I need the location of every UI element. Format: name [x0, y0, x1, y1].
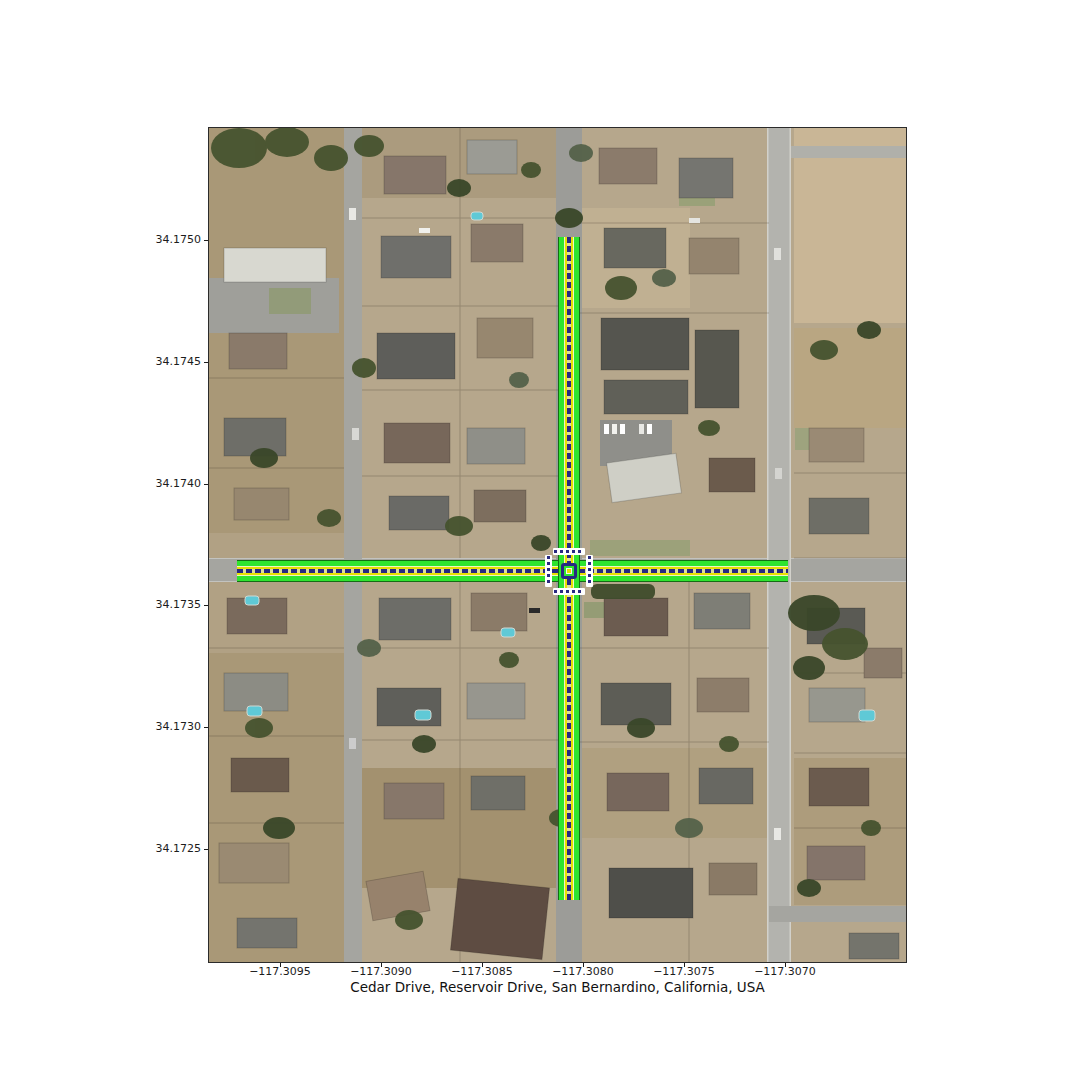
y-tick-mark: [204, 484, 208, 485]
y-tick-label: 34.1745: [96, 356, 201, 368]
crosswalk-north: [553, 548, 585, 555]
x-tick-label: −117.3095: [235, 966, 325, 978]
y-tick-label: 34.1735: [96, 599, 201, 611]
y-tick-mark: [204, 240, 208, 241]
long-white-building: [224, 248, 326, 282]
map-plot-area: [208, 127, 907, 963]
crosswalk-dashes: [588, 556, 591, 586]
y-tick-mark: [204, 849, 208, 850]
intersection-node-core: [567, 569, 571, 573]
crosswalk-dashes: [547, 556, 550, 586]
y-tick-label: 34.1750: [96, 234, 201, 246]
crosswalk-east: [586, 555, 593, 587]
crosswalk-dashes: [554, 590, 584, 593]
y-tick-mark: [204, 727, 208, 728]
x-tick-label: −117.3075: [639, 966, 729, 978]
y-tick-label: 34.1730: [96, 721, 201, 733]
plot-title: Cedar Drive, Reservoir Drive, San Bernar…: [208, 979, 907, 996]
y-tick-mark: [204, 605, 208, 606]
y-tick-mark: [204, 362, 208, 363]
highlighted-road-reservoir-drive: [237, 560, 788, 582]
centerline-dashes-horizontal: [237, 569, 788, 573]
crosswalk-south: [553, 588, 585, 595]
intersection-node-marker: [561, 563, 577, 579]
figure-canvas: 34.1750 34.1745 34.1740 34.1735 34.1730 …: [0, 0, 1087, 1080]
x-tick-label: −117.3080: [538, 966, 628, 978]
crosswalk-dashes: [554, 550, 584, 553]
y-tick-label: 34.1740: [96, 478, 201, 490]
x-tick-label: −117.3090: [336, 966, 426, 978]
x-tick-label: −117.3070: [740, 966, 830, 978]
x-tick-label: −117.3085: [437, 966, 527, 978]
crosswalk-west: [545, 555, 552, 587]
y-tick-label: 34.1725: [96, 843, 201, 855]
